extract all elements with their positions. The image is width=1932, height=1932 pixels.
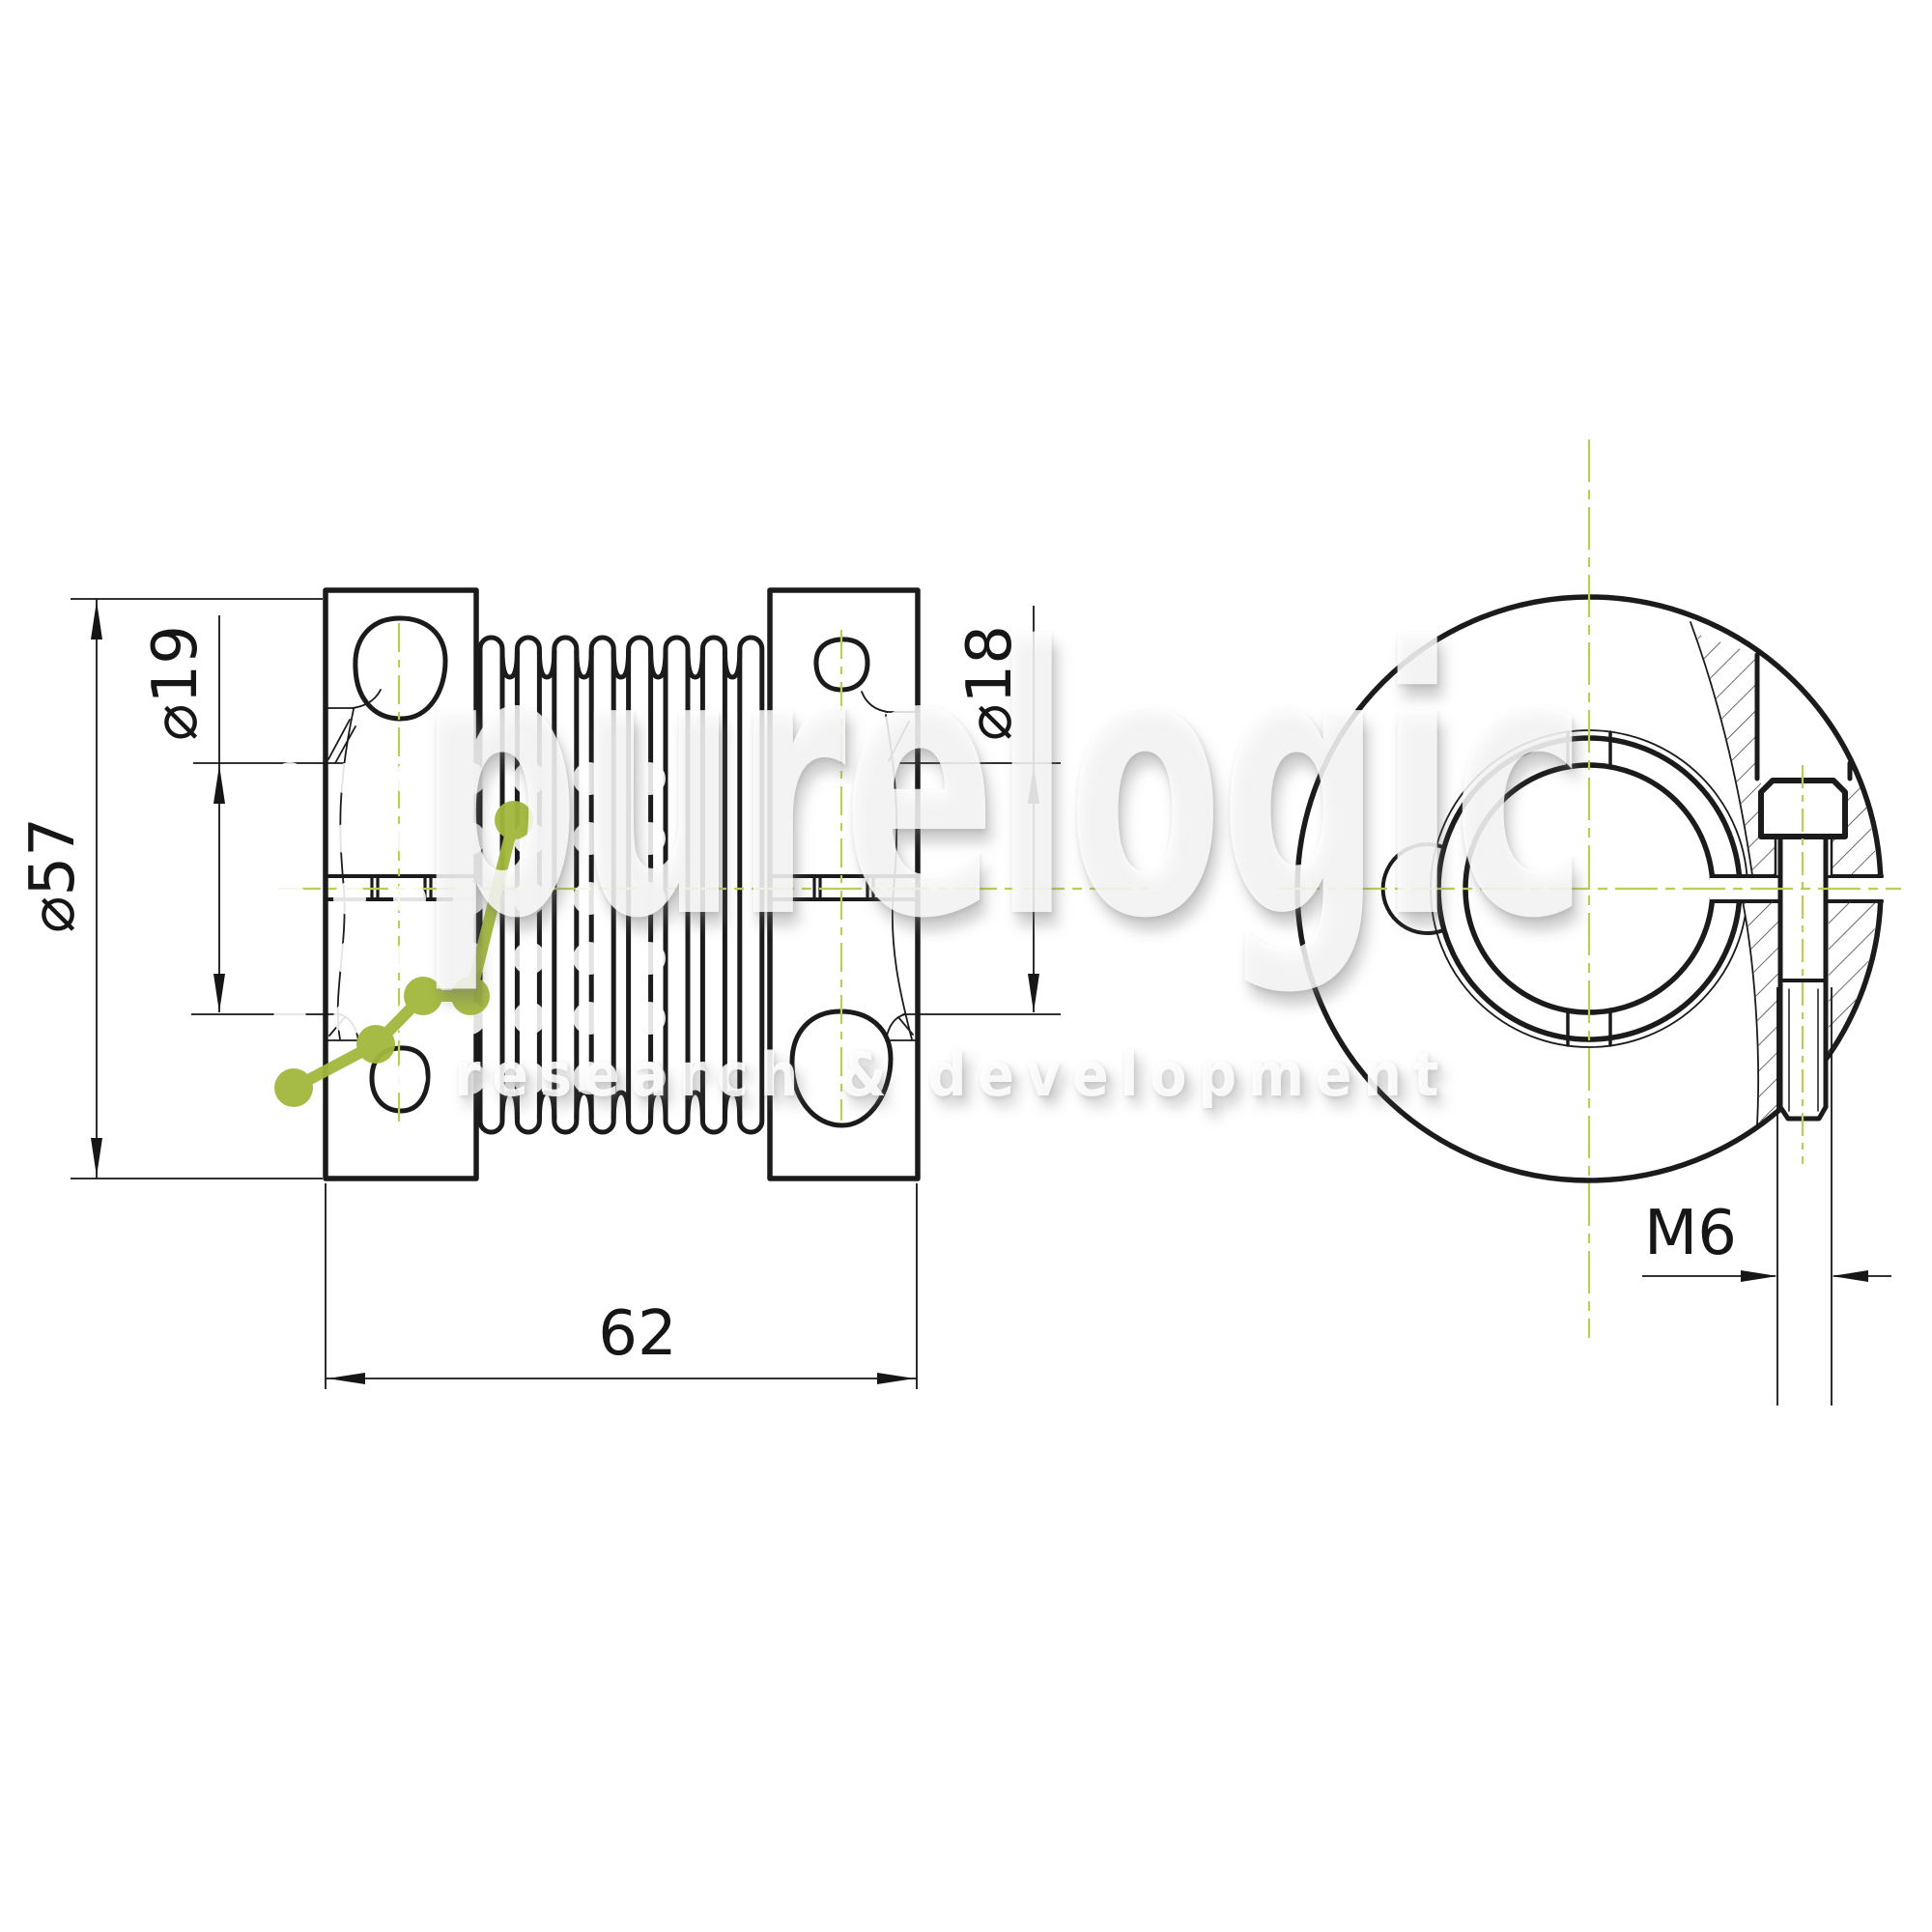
side-view (326, 590, 918, 1179)
coupling-drawing: ⌀57 ⌀19 ⌀18 62 M6 (0, 0, 1932, 1932)
bellows (480, 638, 762, 1132)
label-bore-left: ⌀19 (140, 625, 212, 741)
drawing-sheet: ⌀57 ⌀19 ⌀18 62 M6 purelogic research & d… (0, 0, 1932, 1932)
label-screw-thread: M6 (1644, 1198, 1737, 1269)
label-bore-right: ⌀18 (954, 625, 1026, 741)
label-outer-diameter: ⌀57 (17, 817, 89, 933)
left-hub-top-hole (355, 618, 445, 719)
label-length: 62 (598, 1298, 676, 1370)
